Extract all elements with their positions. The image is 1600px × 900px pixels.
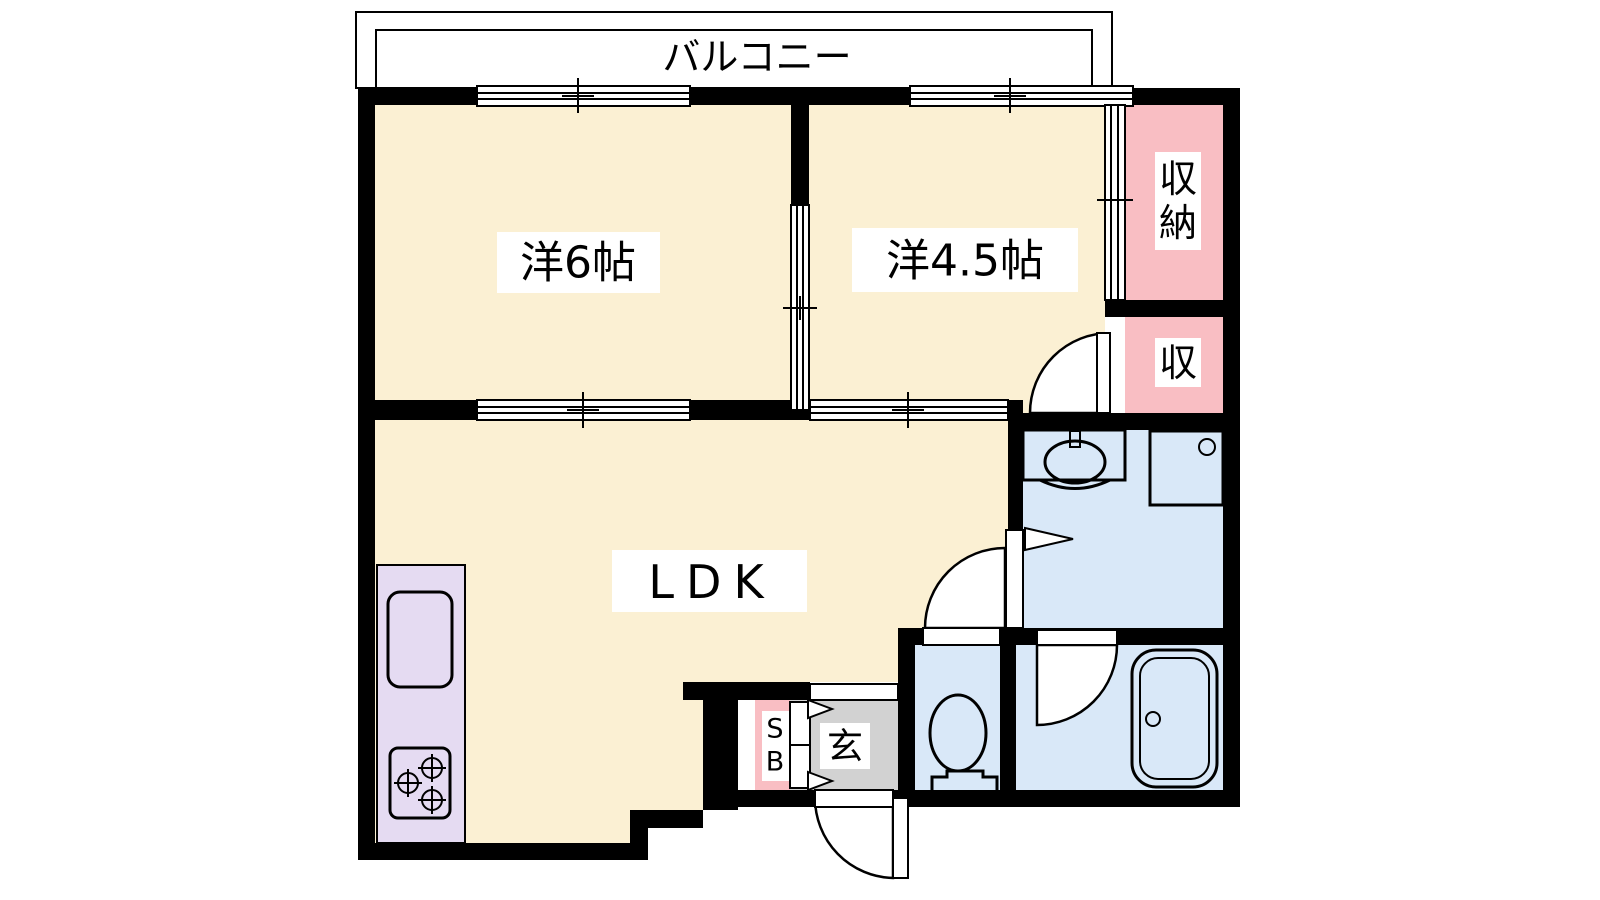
floor-plan: バルコニー 洋6帖 洋4.5帖 LDK 収 納 収 玄 S: [0, 0, 1600, 900]
ldk-label-text: LDK: [648, 555, 775, 609]
wall-washroom-left: [1008, 400, 1023, 530]
wall-right: [1223, 88, 1240, 807]
wall-ldk-entrance: [683, 682, 810, 700]
wall-bedroom-divider: [791, 104, 809, 205]
door-gap: [815, 790, 893, 807]
wall-bottom-right: [738, 790, 1240, 807]
bedroom-6-label-text: 洋6帖: [520, 238, 636, 289]
shoe-box-label-text: B: [766, 747, 785, 778]
wall-toilet-bath: [1000, 645, 1016, 790]
storage-large-label-text: 収: [1159, 157, 1197, 201]
door-toilet: [923, 628, 1000, 645]
balcony-label-text: バルコニー: [662, 35, 851, 79]
storage-small-label-text: 収: [1159, 341, 1197, 385]
entrance-label: 玄: [820, 723, 870, 769]
wall-entrance-toilet: [898, 628, 915, 807]
ldk-label: LDK: [612, 550, 807, 612]
door-leaf: [1097, 333, 1110, 413]
door-leaf: [893, 798, 908, 878]
shoe-box-label-text: S: [766, 714, 783, 745]
door-leaf: [1006, 530, 1023, 628]
door-leaf: [1037, 630, 1117, 645]
bedroom-6-label: 洋6帖: [497, 232, 660, 293]
storage-large-label: 収 納: [1155, 152, 1201, 250]
door-entrance: [815, 790, 908, 878]
storage-large-label-text: 納: [1159, 201, 1197, 245]
storage-small-label: 収: [1155, 338, 1201, 387]
wall-washroom-top: [1008, 413, 1240, 430]
wall-step-horizontal: [630, 810, 703, 828]
bedroom-45-label: 洋4.5帖: [852, 228, 1078, 292]
opening-ldk-entrance: [810, 684, 898, 700]
wall-left: [358, 88, 375, 860]
toilet-floor: [915, 645, 1000, 790]
balcony-label: バルコニー: [640, 33, 874, 79]
shoe-box-label: S B: [762, 711, 789, 781]
entrance-label-text: 玄: [827, 727, 863, 768]
wall-shoebox-left: [703, 700, 738, 810]
sliding-door-frame: [1105, 105, 1125, 300]
door-swing-arc: [815, 798, 893, 878]
washroom-floor: [1023, 430, 1223, 628]
wall-bottom-left: [358, 843, 648, 860]
bedroom-45-label-text: 洋4.5帖: [886, 236, 1044, 287]
wall-closet-divider: [1105, 300, 1240, 317]
wall-bedroom-ldk-a: [375, 400, 477, 420]
